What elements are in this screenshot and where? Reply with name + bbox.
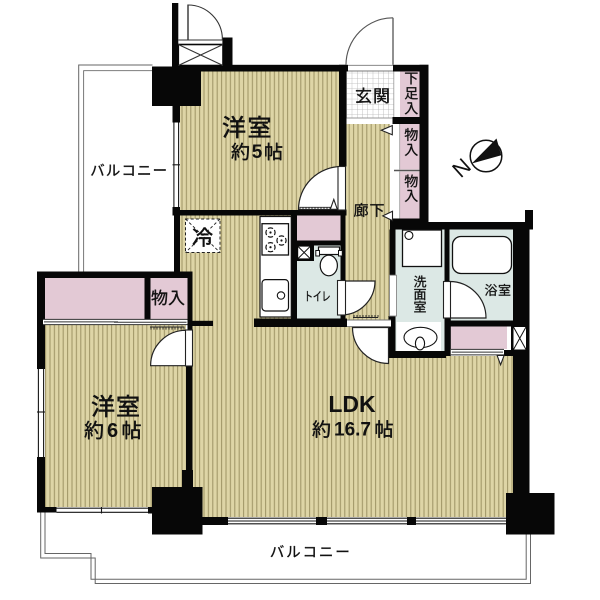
svg-text:LDK: LDK bbox=[328, 391, 376, 417]
svg-text:6: 6 bbox=[107, 420, 118, 442]
svg-text:5: 5 bbox=[252, 142, 263, 163]
svg-text:16.7: 16.7 bbox=[334, 420, 371, 441]
